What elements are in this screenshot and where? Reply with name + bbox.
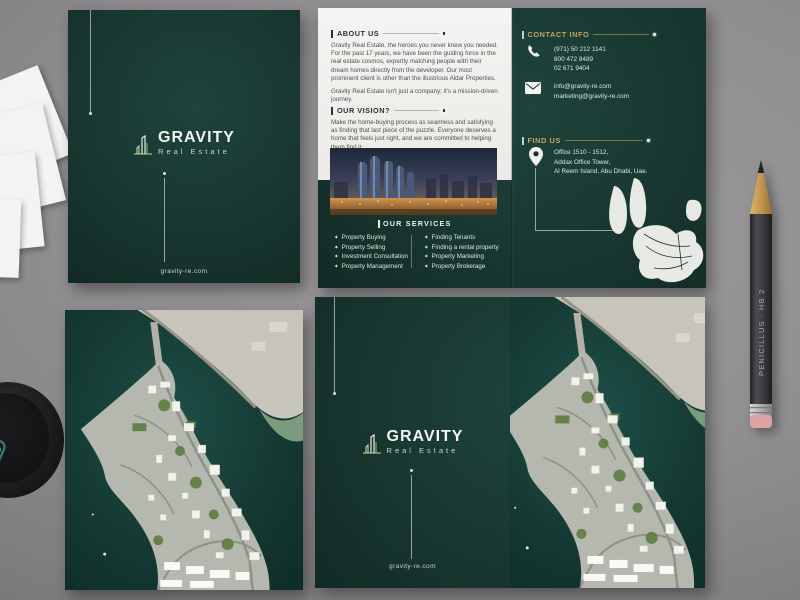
brochure-back-spread: GRAVITY Real Estate gravity-re.com xyxy=(315,297,705,588)
decor-dot xyxy=(163,172,166,175)
heading-end-dot xyxy=(653,33,656,36)
service-item: ✦Investment Consultation xyxy=(334,252,408,262)
heading-bar xyxy=(522,137,524,145)
services-left-list: ✦Property Buying ✦Property Selling ✦Inve… xyxy=(334,233,408,271)
heading-rule xyxy=(394,110,439,111)
about-text: Gravity Real Estate, the heroes you neve… xyxy=(331,42,499,109)
service-bullet-icon: ✦ xyxy=(424,235,429,241)
service-item: ✦Property Buying xyxy=(334,233,408,243)
about-heading: ABOUT US xyxy=(331,29,445,38)
decor-line xyxy=(164,178,165,262)
website-text: gravity-re.com xyxy=(68,268,300,275)
brochure-front-cover: GRAVITY Real Estate gravity-re.com xyxy=(68,10,300,283)
paper-sheet xyxy=(0,196,21,278)
skyline-towers-icon xyxy=(133,134,153,156)
service-item: ✦Finding Tenants xyxy=(424,233,499,243)
heading-bar xyxy=(331,107,333,115)
service-bullet-icon: ✦ xyxy=(334,245,339,251)
city-skyline-photo xyxy=(330,148,497,215)
brand-name: GRAVITY xyxy=(158,130,235,146)
pin-connector-line xyxy=(535,168,536,230)
services-heading: OUR SERVICES xyxy=(318,219,512,228)
service-item: ✦Property Brokerage xyxy=(424,262,499,272)
service-item: ✦Property Management xyxy=(334,262,408,272)
heading-end-dot xyxy=(443,109,446,112)
decor-dot xyxy=(410,469,413,472)
heading-rule xyxy=(565,140,643,141)
paperclip-dish xyxy=(0,380,70,502)
heading-bar xyxy=(522,31,524,39)
heading-end-dot xyxy=(443,32,446,35)
brand-logo: GRAVITY Real Estate xyxy=(68,130,300,156)
heading-bar xyxy=(378,220,380,228)
phone-numbers: (971) 50 212 1141 800 472 8489 02 671 94… xyxy=(554,45,606,74)
aerial-island-image xyxy=(65,310,303,590)
service-bullet-icon: ✦ xyxy=(334,264,339,270)
pencil: PENICILLUS · HB 2 xyxy=(744,158,778,428)
fold-crease xyxy=(511,8,514,288)
service-bullet-icon: ✦ xyxy=(424,264,429,270)
service-item: ✦Property Marketing xyxy=(424,252,499,262)
map-pin-icon xyxy=(529,147,543,166)
contact-heading: CONTACT INFO xyxy=(522,30,656,39)
brand-tagline: Real Estate xyxy=(158,148,235,156)
heading-rule xyxy=(593,34,649,35)
decor-line xyxy=(90,10,91,112)
decor-dot xyxy=(89,112,92,115)
brochure-back-cover-left xyxy=(65,310,303,590)
pencil-imprint: PENICILLUS · HB 2 xyxy=(757,288,766,376)
services-divider xyxy=(411,235,412,268)
service-bullet-icon: ✦ xyxy=(334,235,339,241)
envelope-icon xyxy=(525,82,541,94)
find-us-heading: FIND US xyxy=(522,136,650,145)
service-item: ✦Finding a rental property xyxy=(424,243,499,253)
services-right-list: ✦Finding Tenants ✦Finding a rental prope… xyxy=(424,233,499,271)
vision-heading: OUR VISION? xyxy=(331,106,445,115)
service-bullet-icon: ✦ xyxy=(424,254,429,260)
decor-dot xyxy=(333,392,336,395)
decor-line xyxy=(411,475,412,559)
decor-line xyxy=(334,297,335,392)
heading-end-dot xyxy=(647,139,650,142)
email-addresses: info@gravity-re.com marketing@gravity-re… xyxy=(554,82,629,101)
island-map-silhouette xyxy=(594,172,706,288)
skyline-towers-icon xyxy=(362,433,382,455)
brand-logo: GRAVITY Real Estate xyxy=(315,429,510,455)
heading-rule xyxy=(383,33,438,34)
service-item: ✦Property Selling xyxy=(334,243,408,253)
desk-scene: GRAVITY Real Estate gravity-re.com ABOUT… xyxy=(0,0,800,600)
website-text: gravity-re.com xyxy=(315,563,510,570)
brand-name: GRAVITY xyxy=(387,429,464,445)
service-bullet-icon: ✦ xyxy=(424,245,429,251)
aerial-island-image xyxy=(510,297,705,588)
heading-bar xyxy=(331,30,333,38)
brochure-inside-spread: ABOUT US Gravity Real Estate, the heroes… xyxy=(318,8,706,288)
service-bullet-icon: ✦ xyxy=(334,254,339,260)
phone-icon xyxy=(526,44,541,59)
brand-tagline: Real Estate xyxy=(387,447,464,455)
